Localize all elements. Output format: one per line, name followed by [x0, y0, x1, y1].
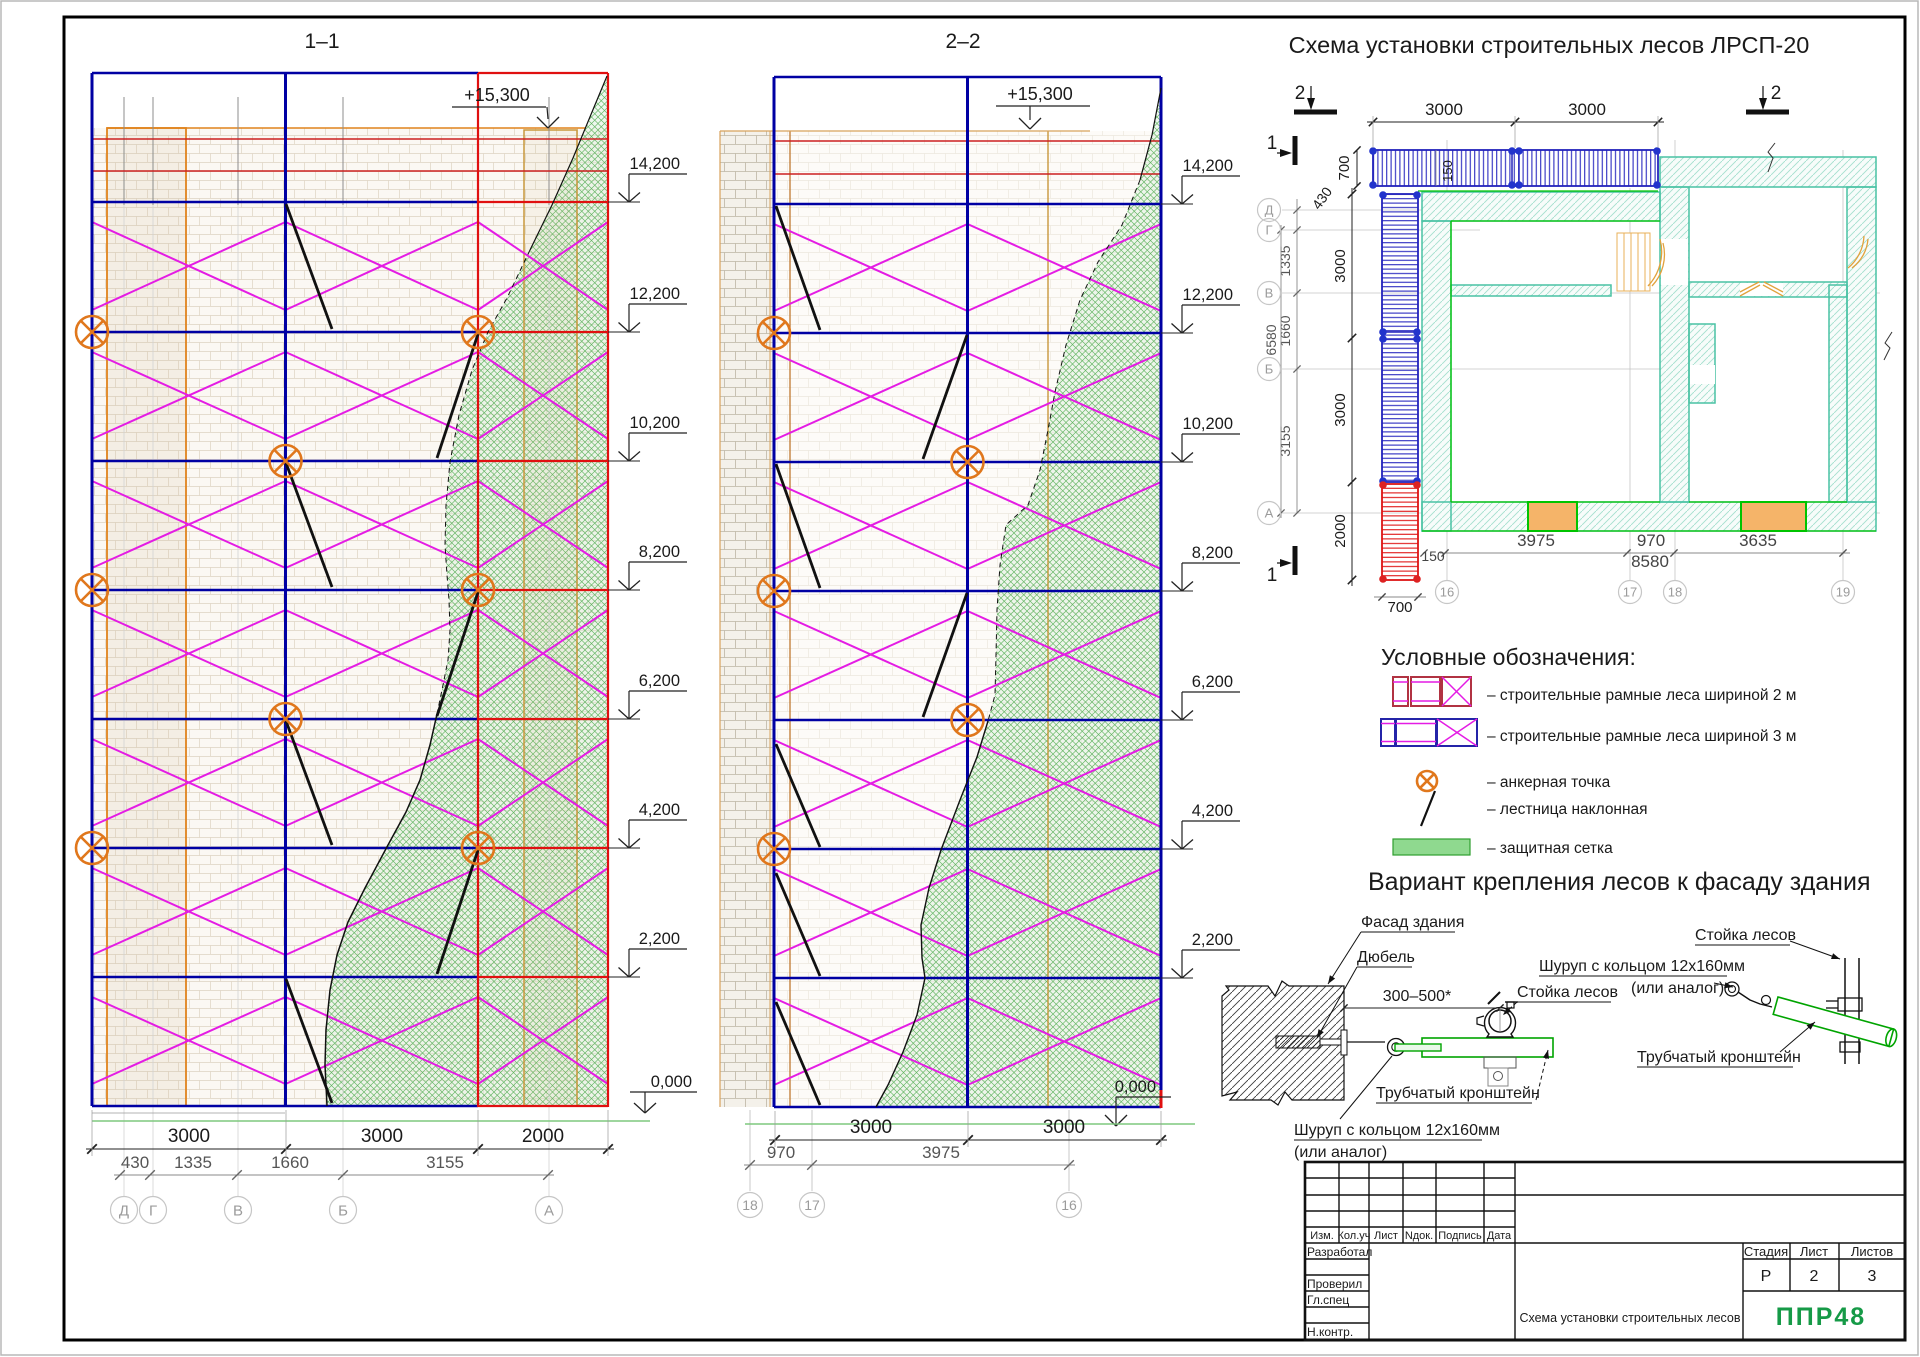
svg-text:А: А: [1265, 506, 1274, 521]
svg-text:Б: Б: [1265, 362, 1274, 377]
svg-text:2,200: 2,200: [1192, 931, 1233, 949]
svg-text:– защитная сетка: – защитная сетка: [1487, 840, 1613, 857]
svg-text:1335: 1335: [174, 1153, 212, 1172]
svg-text:Стойка лесов: Стойка лесов: [1517, 984, 1618, 1001]
svg-text:Г: Г: [1265, 223, 1272, 238]
svg-text:Шуруп с кольцом 12х160мм: Шуруп с кольцом 12х160мм: [1539, 958, 1745, 975]
svg-text:Изм.: Изм.: [1310, 1230, 1334, 1242]
svg-text:1660: 1660: [271, 1153, 309, 1172]
svg-text:3975: 3975: [922, 1143, 960, 1162]
svg-text:Шуруп с кольцом 12х160мм: Шуруп с кольцом 12х160мм: [1294, 1122, 1500, 1139]
svg-text:Проверил: Проверил: [1307, 1277, 1362, 1291]
svg-text:– лестница наклонная: – лестница наклонная: [1487, 801, 1648, 818]
svg-text:1–1: 1–1: [304, 30, 339, 53]
svg-text:8,200: 8,200: [639, 543, 680, 561]
svg-text:Гл.спец: Гл.спец: [1307, 1293, 1349, 1307]
svg-text:3635: 3635: [1739, 531, 1777, 550]
svg-text:Г: Г: [149, 1202, 157, 1219]
svg-text:Разработал: Разработал: [1307, 1245, 1372, 1259]
svg-text:300–500*: 300–500*: [1383, 988, 1452, 1005]
svg-text:Трубчатый кронштейн: Трубчатый кронштейн: [1376, 1085, 1540, 1102]
svg-text:17: 17: [1623, 585, 1637, 600]
svg-text:Стойка лесов: Стойка лесов: [1695, 927, 1796, 944]
svg-text:8580: 8580: [1631, 552, 1669, 571]
svg-text:16: 16: [1440, 585, 1454, 600]
svg-text:Условные обозначения:: Условные обозначения:: [1381, 644, 1636, 670]
svg-text:970: 970: [767, 1143, 795, 1162]
svg-text:+15,300: +15,300: [464, 85, 530, 105]
svg-text:0,000: 0,000: [651, 1073, 692, 1091]
svg-text:Дюбель: Дюбель: [1357, 949, 1415, 966]
svg-text:– строительные рамные леса шир: – строительные рамные леса шириной 2 м: [1487, 687, 1796, 704]
svg-text:В: В: [233, 1202, 243, 1219]
svg-text:970: 970: [1637, 531, 1665, 550]
svg-text:12,200: 12,200: [630, 285, 680, 303]
svg-text:(или аналог): (или аналог): [1631, 980, 1724, 997]
svg-text:3000: 3000: [1568, 100, 1606, 119]
svg-text:14,200: 14,200: [630, 155, 680, 173]
svg-text:3155: 3155: [1277, 425, 1293, 456]
svg-text:3000: 3000: [1043, 1117, 1085, 1138]
svg-text:Стадия: Стадия: [1744, 1244, 1788, 1259]
svg-text:3000: 3000: [1332, 393, 1349, 426]
svg-text:6580: 6580: [1263, 324, 1279, 355]
svg-text:Вариант крепления лесов к фаса: Вариант крепления лесов к фасаду здания: [1368, 868, 1871, 896]
svg-text:Трубчатый кронштейн: Трубчатый кронштейн: [1637, 1049, 1801, 1066]
svg-text:2: 2: [1771, 83, 1782, 104]
svg-text:19: 19: [1836, 585, 1850, 600]
svg-text:700: 700: [1387, 599, 1412, 616]
svg-text:Д: Д: [119, 1202, 129, 1219]
svg-text:3000: 3000: [1425, 100, 1463, 119]
svg-text:3000: 3000: [1332, 249, 1349, 282]
svg-text:3000: 3000: [850, 1117, 892, 1138]
svg-text:2000: 2000: [522, 1126, 564, 1147]
svg-text:18: 18: [742, 1197, 758, 1213]
svg-text:10,200: 10,200: [1183, 415, 1233, 433]
svg-text:1335: 1335: [1277, 245, 1293, 276]
svg-text:2: 2: [1295, 83, 1306, 104]
svg-text:14,200: 14,200: [1183, 157, 1233, 175]
svg-text:Дата: Дата: [1487, 1230, 1512, 1242]
svg-text:6,200: 6,200: [639, 672, 680, 690]
svg-text:17: 17: [804, 1197, 820, 1213]
svg-text:3: 3: [1868, 1268, 1877, 1285]
svg-text:2,200: 2,200: [639, 930, 680, 948]
svg-text:Лист: Лист: [1800, 1244, 1828, 1259]
svg-text:0,000: 0,000: [1115, 1078, 1156, 1096]
svg-text:А: А: [544, 1202, 554, 1219]
svg-text:Н.контр.: Н.контр.: [1307, 1325, 1353, 1339]
svg-text:ППР48: ППР48: [1776, 1303, 1866, 1331]
svg-text:1: 1: [1267, 565, 1278, 586]
svg-text:2000: 2000: [1332, 514, 1349, 547]
svg-text:3975: 3975: [1517, 531, 1555, 550]
svg-text:+15,300: +15,300: [1007, 84, 1073, 104]
svg-text:3000: 3000: [361, 1126, 403, 1147]
svg-text:2: 2: [1810, 1268, 1819, 1285]
svg-text:– анкерная точка: – анкерная точка: [1487, 774, 1611, 791]
svg-text:1660: 1660: [1277, 315, 1293, 346]
svg-text:3155: 3155: [426, 1153, 464, 1172]
svg-text:Подпись: Подпись: [1438, 1230, 1482, 1242]
svg-text:Фасад здания: Фасад здания: [1361, 914, 1464, 931]
svg-text:430: 430: [121, 1153, 149, 1172]
svg-text:12,200: 12,200: [1183, 286, 1233, 304]
svg-text:4,200: 4,200: [639, 801, 680, 819]
svg-text:Кол.уч: Кол.уч: [1338, 1230, 1371, 1242]
svg-text:Д: Д: [1265, 203, 1274, 218]
svg-text:1: 1: [1267, 133, 1278, 154]
svg-text:4,200: 4,200: [1192, 802, 1233, 820]
svg-text:6,200: 6,200: [1192, 673, 1233, 691]
svg-text:150: 150: [1440, 160, 1455, 182]
svg-text:18: 18: [1668, 585, 1682, 600]
svg-text:Схема установки строительных л: Схема установки строительных лесов ЛРСП-…: [1289, 32, 1810, 58]
svg-text:(или аналог): (или аналог): [1294, 1144, 1387, 1161]
svg-text:Р: Р: [1761, 1268, 1772, 1285]
svg-text:Листов: Листов: [1851, 1244, 1893, 1259]
svg-text:10,200: 10,200: [630, 414, 680, 432]
svg-text:700: 700: [1336, 155, 1353, 180]
svg-text:Схема установки строительных л: Схема установки строительных лесов: [1519, 1311, 1740, 1325]
svg-text:Лист: Лист: [1374, 1230, 1398, 1242]
svg-text:В: В: [1265, 286, 1274, 301]
svg-text:– строительные рамные леса шир: – строительные рамные леса шириной 3 м: [1487, 728, 1796, 745]
svg-text:3000: 3000: [168, 1126, 210, 1147]
svg-text:8,200: 8,200: [1192, 544, 1233, 562]
svg-text:150: 150: [1421, 548, 1445, 564]
svg-text:2–2: 2–2: [945, 30, 980, 53]
svg-text:Б: Б: [338, 1202, 348, 1219]
svg-text:16: 16: [1061, 1197, 1077, 1213]
svg-text:Nдок.: Nдок.: [1405, 1230, 1433, 1242]
